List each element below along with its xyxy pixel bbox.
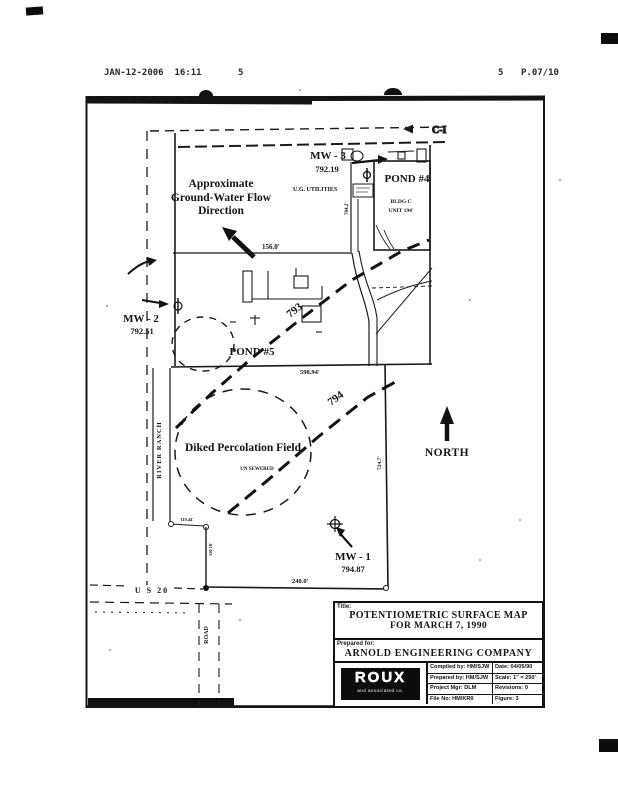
prepared-for-label: Prepared for:	[337, 641, 375, 647]
logo-cell: ROUX and associated co.	[335, 663, 428, 704]
pond5-outline	[172, 317, 234, 371]
contour-793: 793	[176, 240, 429, 428]
well-mw3: MW - 3 792.19	[310, 150, 388, 182]
central-buildings	[230, 268, 322, 332]
north-label: NORTH	[425, 447, 469, 459]
pond4: POND #4 BLDG C UNIT 194' 784.2'	[345, 161, 430, 252]
dim-east-line: 724.7'	[377, 456, 383, 470]
dim-ranch-h: 119.44'	[180, 517, 193, 522]
road-label: ROAD	[204, 626, 210, 644]
flow-label-line2: Ground-Water Flow	[171, 192, 272, 204]
well-mw1: MW - 1 794.87	[327, 516, 371, 574]
roux-logo-subtext: and associated co.	[341, 688, 420, 693]
mw3-arrow-icon	[378, 155, 388, 164]
pond4-wall-dim: 784.2'	[345, 202, 350, 215]
flow-label-line1: Approximate	[189, 178, 254, 190]
mw3-elevation: 792.19	[315, 164, 338, 174]
percolation-field: Diked Percolation Field UN SEWERED	[175, 389, 311, 515]
pond5: POND #5	[172, 317, 275, 371]
roux-logo-text: ROUX	[341, 668, 420, 688]
credit-cell: Scale: 1" = 250'	[493, 674, 542, 684]
rail-label: C-I	[432, 125, 447, 136]
dim-north-line: 156.0'	[262, 243, 280, 251]
pond4-bldg-label: BLDG C	[391, 199, 412, 205]
table-row: File No: HM/KRII Figure: 3	[428, 695, 542, 705]
utilities-label: U.G. UTILITIES	[293, 187, 338, 193]
mw1-arrow-icon	[336, 527, 345, 537]
us20-road	[90, 585, 232, 706]
mw2-arrow-icon	[159, 300, 169, 308]
mw2-label: MW - 2	[123, 313, 159, 325]
table-row: Compiled by: HM/SJW Date: 04/05/90	[428, 663, 542, 674]
rail-arrow-icon	[403, 125, 413, 134]
dim-mid-line: 598.94'	[300, 369, 320, 376]
mw2-elevation: 792.51	[130, 326, 153, 336]
credit-cell: Compiled by: HM/SJW	[428, 663, 493, 673]
title-block: Title: POTENTIOMETRIC SURFACE MAP FOR MA…	[333, 601, 544, 708]
dim-ranch-v: 110.18'	[208, 543, 213, 556]
north-arrow-icon	[440, 406, 454, 424]
flow-direction-label: Approximate Ground-Water Flow Direction	[171, 178, 272, 217]
credits-section: ROUX and associated co. Compiled by: HM/…	[335, 663, 542, 704]
mw3-label: MW - 3	[310, 150, 346, 162]
rail-lines: C-I	[150, 125, 447, 148]
table-row: Prepared by: HM/SJW Scale: 1" = 250'	[428, 674, 542, 685]
river-ranch-label: RIVER RANCH	[156, 421, 163, 478]
perc-field-label: Diked Percolation Field	[185, 442, 302, 454]
pond4-label: POND #4	[385, 173, 430, 185]
pond4-unit-label: UNIT 194'	[389, 208, 414, 214]
prepared-for-section: Prepared for: ARNOLD ENGINEERING COMPANY	[335, 640, 542, 663]
credits-table: Compiled by: HM/SJW Date: 04/05/90 Prepa…	[428, 663, 542, 704]
contour-794-label: 794	[326, 389, 347, 409]
title-field-label: Title:	[337, 604, 351, 610]
credit-cell: Prepared by: HM/SJW	[428, 674, 493, 684]
credit-cell: Project Mgr: DLM	[428, 684, 493, 694]
map-title-line2: FOR MARCH 7, 1990	[335, 621, 542, 631]
mw1-label: MW - 1	[335, 551, 371, 563]
credit-cell: Revisions: 0	[493, 684, 542, 694]
access-roads	[352, 251, 432, 366]
title-section: Title: POTENTIOMETRIC SURFACE MAP FOR MA…	[335, 603, 542, 640]
pond5-label: POND #5	[230, 346, 275, 358]
credit-cell: Figure: 3	[493, 695, 542, 705]
flow-label-line3: Direction	[198, 205, 244, 217]
us20-label: U S 20	[135, 586, 169, 595]
table-row: Project Mgr: DLM Revisions: 0	[428, 684, 542, 695]
credit-cell: File No: HM/KRII	[428, 695, 493, 705]
well-mw2: MW - 2 792.51	[123, 257, 182, 336]
north-arrow: NORTH	[425, 406, 469, 459]
perc-field-note: UN SEWERED	[240, 467, 274, 472]
map-title-line1: POTENTIOMETRIC SURFACE MAP	[335, 603, 542, 621]
fax-page: JAN-12-2006 16:11 5 5 P.07/10 C-I	[0, 0, 618, 800]
dim-south-line: 240.0'	[292, 578, 309, 585]
credit-cell: Date: 04/05/90	[493, 663, 542, 673]
mw1-elevation: 794.87	[341, 564, 365, 574]
roux-logo: ROUX and associated co.	[341, 668, 420, 700]
